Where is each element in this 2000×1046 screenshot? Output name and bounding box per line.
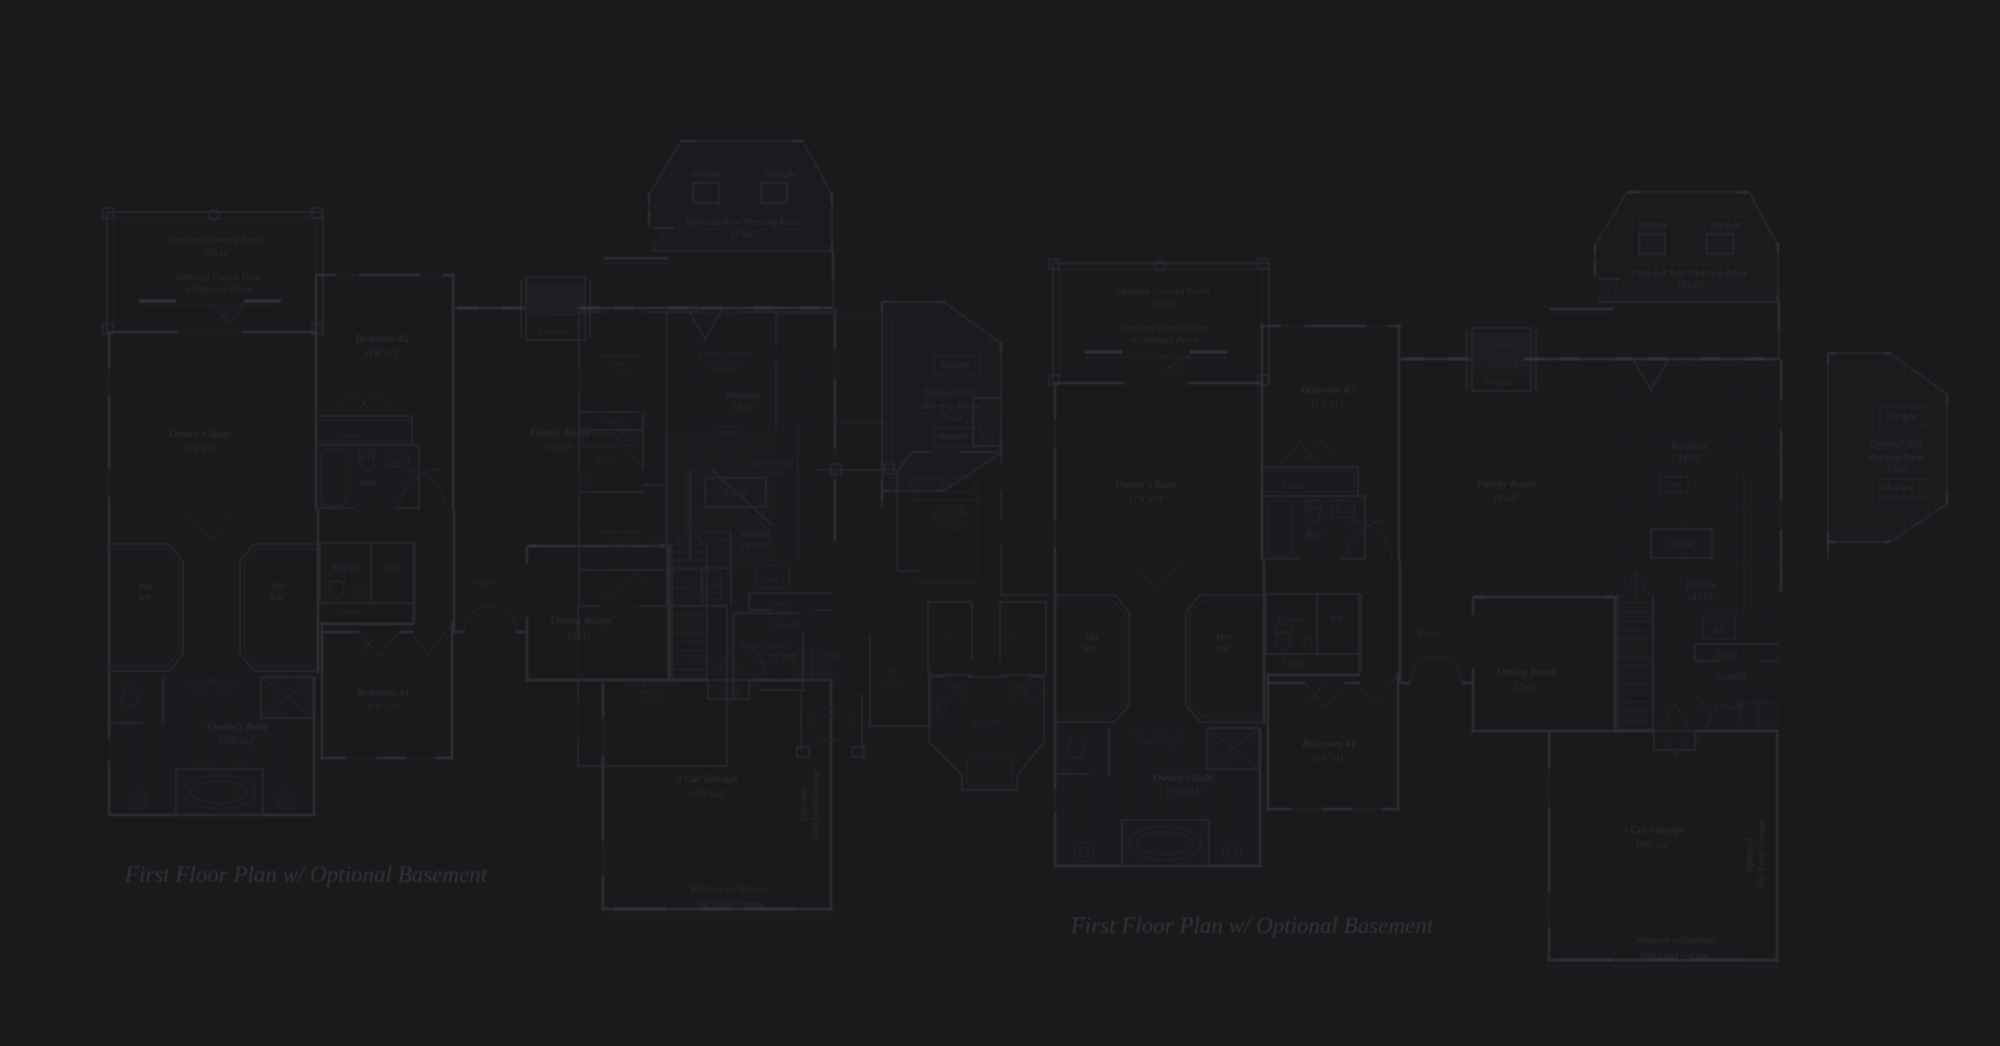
svg-text:9'-11' CLNG: 9'-11' CLNG <box>935 527 966 533</box>
svg-text:BATH: BATH <box>597 458 616 465</box>
svg-text:11'-10"x14'-0": 11'-10"x14'-0" <box>747 652 782 658</box>
svg-text:W.I.C.: W.I.C. <box>942 634 961 641</box>
svg-text:M. BATH: M. BATH <box>973 720 1002 727</box>
svg-text:DEN: DEN <box>886 669 901 676</box>
svg-text:DINING ROOM: DINING ROOM <box>740 643 789 650</box>
svg-text:FAMILY ROOM: FAMILY ROOM <box>699 351 748 358</box>
svg-text:W.I.C.: W.I.C. <box>1004 634 1023 641</box>
svg-text:KITCHEN: KITCHEN <box>700 529 731 536</box>
svg-text:12'-10"x15'-10": 12'-10"x15'-10" <box>931 520 970 526</box>
svg-text:BREAKFAST: BREAKFAST <box>753 461 794 468</box>
svg-text:20'-4"x20'-4": 20'-4"x20'-4" <box>636 690 669 696</box>
svg-text:FOYER: FOYER <box>817 652 841 659</box>
svg-text:10' CLNG: 10' CLNG <box>712 367 738 373</box>
svg-text:COVERED PATIO: COVERED PATIO <box>832 420 887 427</box>
svg-text:BEDROOM: BEDROOM <box>932 512 967 519</box>
svg-text:11'-2"x11'-0": 11'-2"x11'-0" <box>606 538 638 544</box>
svg-text:12' CLNG: 12' CLNG <box>752 659 778 665</box>
svg-text:11'-1"x12'-1": 11'-1"x12'-1" <box>877 678 909 684</box>
svg-text:BEDROOM #4: BEDROOM #4 <box>600 529 645 536</box>
svg-text:9' CLNG: 9' CLNG <box>611 545 634 551</box>
svg-text:10'CLNG: 10'CLNG <box>704 538 728 544</box>
svg-text:BEDROOM #3: BEDROOM #3 <box>601 353 646 360</box>
svg-text:MASTER: MASTER <box>936 504 965 511</box>
svg-text:CLOSET: CLOSET <box>596 594 619 600</box>
svg-text:9' CLNG: 9' CLNG <box>641 697 664 703</box>
svg-text:2 CAR GARAGE: 2 CAR GARAGE <box>626 681 678 688</box>
svg-text:17'-10"x20'-2": 17'-10"x20'-2" <box>706 360 742 366</box>
svg-text:UTILITY: UTILITY <box>687 590 715 597</box>
svg-text:BATH: BATH <box>979 422 998 429</box>
svg-text:CLOSET: CLOSET <box>603 419 626 425</box>
svg-text:ENTRY: ENTRY <box>819 737 842 744</box>
svg-text:9' CLNG: 9' CLNG <box>882 685 905 691</box>
svg-text:9' CLNG: 9' CLNG <box>612 369 635 375</box>
svg-text:11'-0"x12'-6": 11'-0"x12'-6" <box>607 362 639 368</box>
svg-text:NOOK: NOOK <box>764 469 784 476</box>
